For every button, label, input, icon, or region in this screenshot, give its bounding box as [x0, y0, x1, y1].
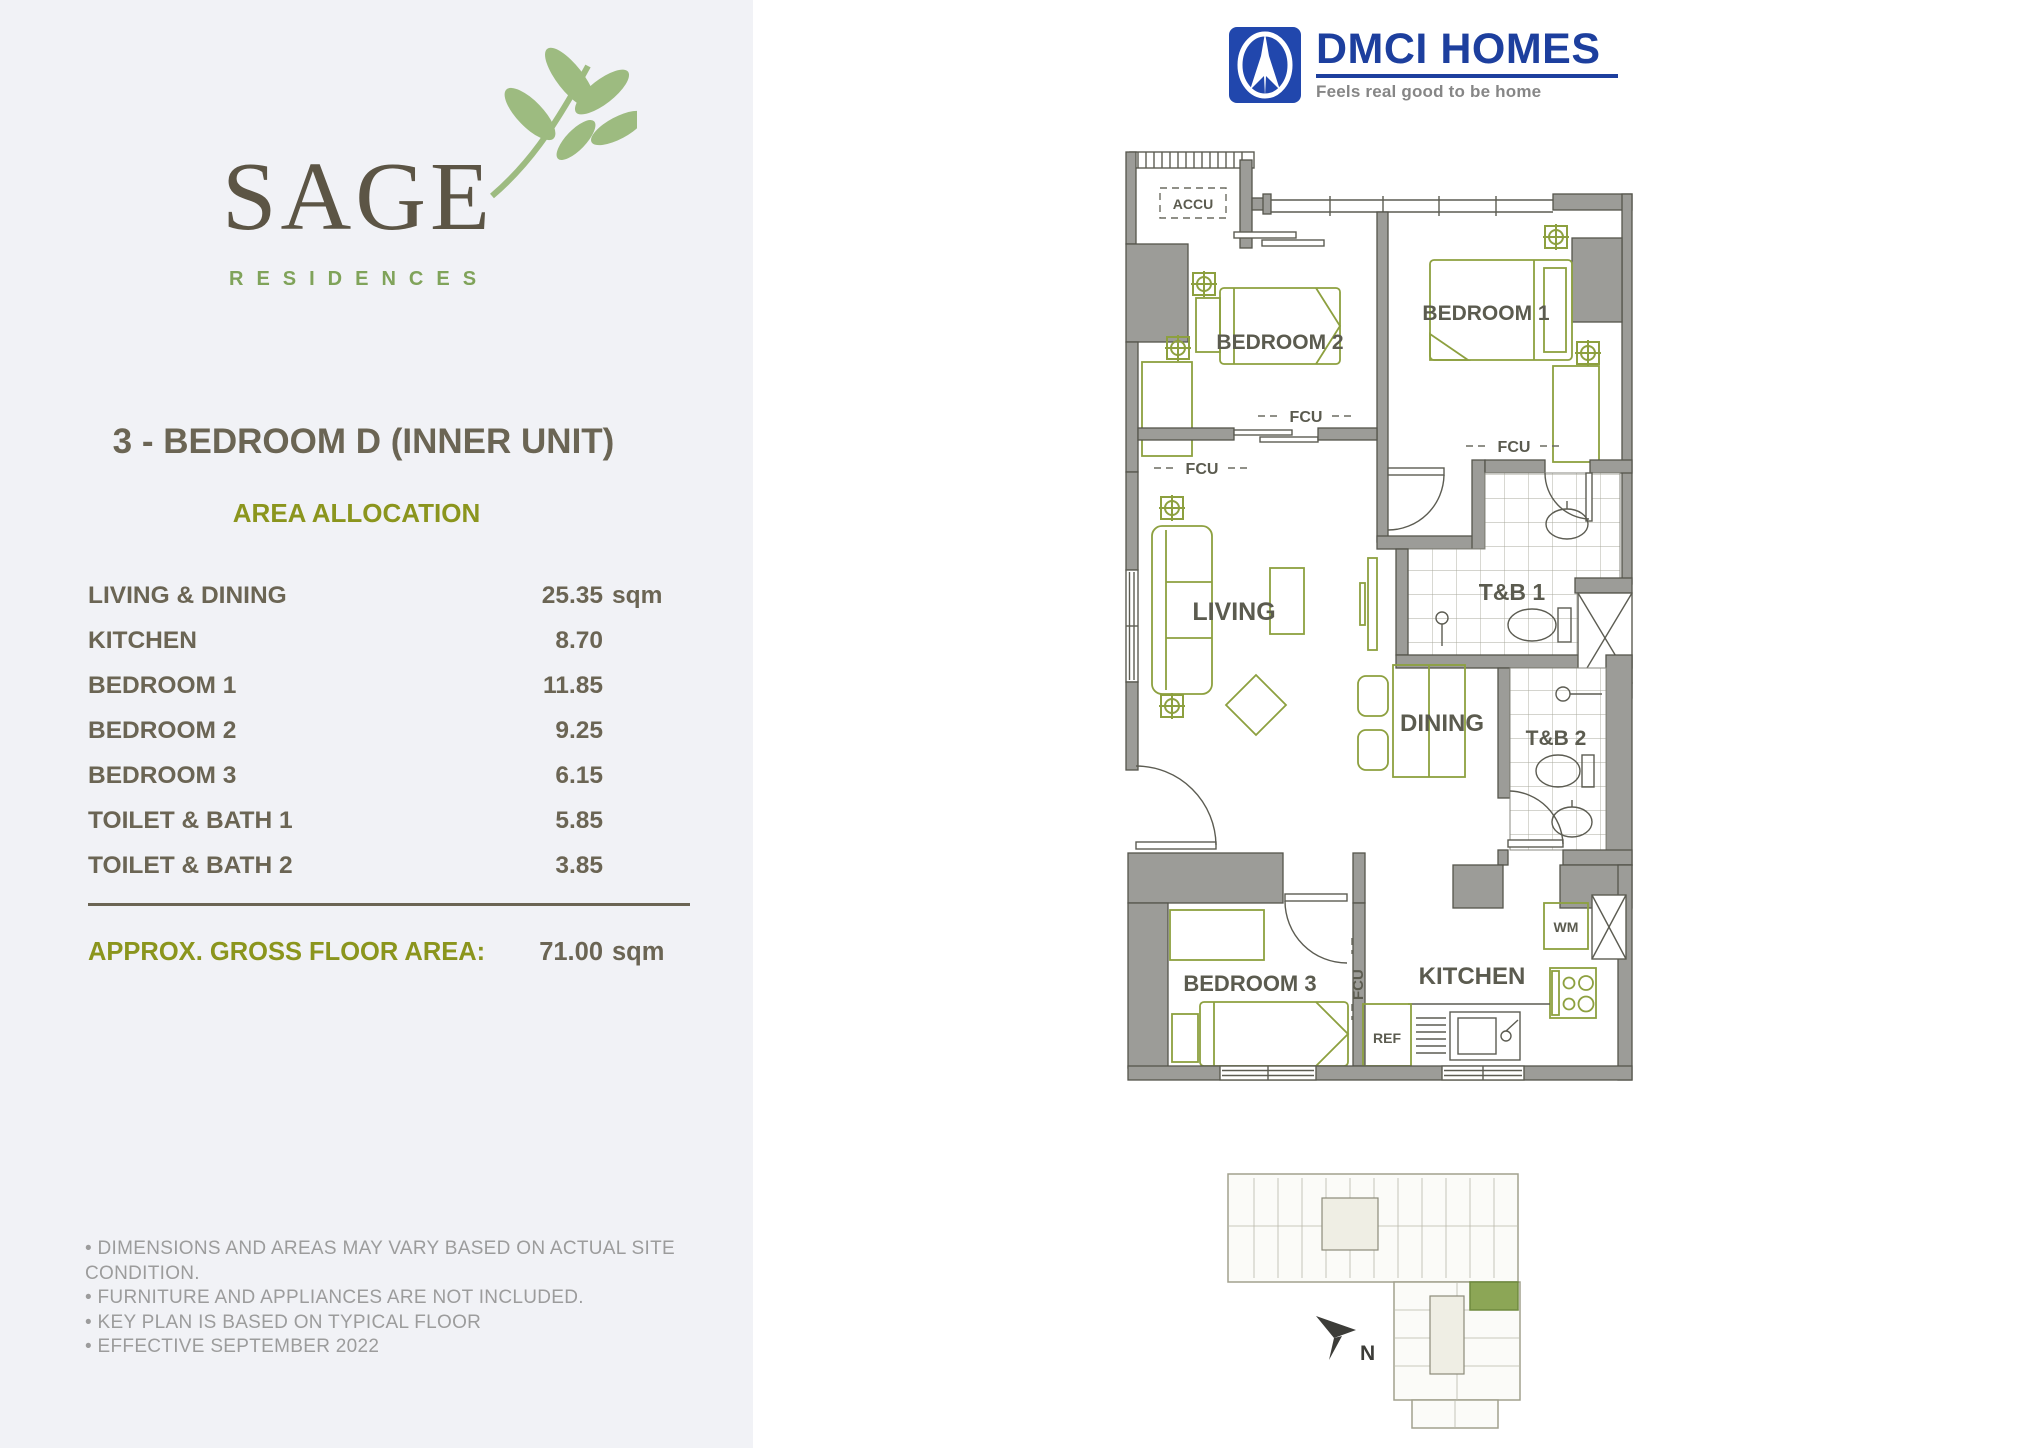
washing-machine: WM [1544, 903, 1588, 949]
sprinkler-icon [1159, 693, 1185, 719]
bedroom3-label: BEDROOM 3 [1183, 971, 1316, 996]
entry-door [1136, 766, 1216, 849]
sprinkler-icon [1159, 495, 1185, 521]
north-arrow-icon: N [1316, 1316, 1375, 1365]
unit-title: 3 - BEDROOM D (INNER UNIT) [0, 422, 727, 462]
table-row: LIVING & DINING 25.35 sqm [88, 582, 690, 627]
table-divider [88, 903, 690, 906]
gross-value: 71.00 [493, 938, 603, 967]
row-label: BEDROOM 3 [88, 762, 493, 790]
tb1-label: T&B 1 [1479, 579, 1546, 605]
accu-label: ACCU [1173, 196, 1213, 212]
svg-text:FCU: FCU [1290, 409, 1323, 426]
brochure-page: SAGE RESIDENCES 3 - BEDROOM D (INNER UNI… [0, 0, 2041, 1448]
row-label: BEDROOM 2 [88, 717, 493, 745]
gross-label: APPROX. GROSS FLOOR AREA: [88, 938, 493, 967]
wardrobe [1170, 910, 1264, 960]
footnote-line: • KEY PLAN IS BASED ON TYPICAL FLOOR [85, 1311, 753, 1336]
left-panel: SAGE RESIDENCES 3 - BEDROOM D (INNER UNI… [0, 0, 753, 1448]
building-core [1322, 1198, 1378, 1250]
footnotes: • DIMENSIONS AND AREAS MAY VARY BASED ON… [85, 1237, 753, 1360]
window-band-top [1271, 196, 1553, 216]
kitchen-sink [1416, 1012, 1520, 1060]
table-row: TOILET & BATH 1 5.85 [88, 807, 690, 852]
window-bottom-kitchen [1442, 1066, 1524, 1080]
fcu-label-bedroom2: FCU [1258, 409, 1354, 426]
column-block [1126, 244, 1188, 342]
column-block [1572, 238, 1622, 322]
north-label: N [1360, 1342, 1375, 1365]
row-value: 6.15 [493, 762, 603, 790]
dining-area: DINING [1358, 665, 1484, 777]
dmci-logo-mark-icon [1228, 26, 1302, 104]
svg-text:WM: WM [1554, 919, 1579, 935]
area-allocation-heading: AREA ALLOCATION [0, 498, 713, 529]
key-plan: N [1222, 1170, 1552, 1448]
floor-plan: ACCU BEDROOM 2 [1120, 138, 1640, 1130]
sprinkler-icon [1575, 340, 1601, 366]
table-row: BEDROOM 3 6.15 [88, 762, 690, 807]
footnote-line: • EFFECTIVE SEPTEMBER 2022 [85, 1335, 753, 1360]
fcu-label-hall: FCU [1154, 461, 1250, 478]
fcu-label-bedroom1: FCU [1466, 439, 1562, 456]
window-left [1126, 570, 1138, 682]
row-unit: sqm [603, 582, 690, 610]
bedroom3: BEDROOM 3 FCU [1170, 910, 1367, 1066]
toilet-bath-2: T&B 2 [1498, 655, 1632, 865]
row-label: BEDROOM 1 [88, 672, 493, 700]
sage-logo-subtitle: RESIDENCES [229, 268, 489, 291]
refrigerator: REF [1363, 1004, 1411, 1066]
row-value: 9.25 [493, 717, 603, 745]
row-value: 5.85 [493, 807, 603, 835]
building-core [1430, 1296, 1464, 1374]
row-label: KITCHEN [88, 627, 493, 655]
living-label: LIVING [1192, 598, 1275, 626]
row-value: 25.35 [493, 582, 603, 610]
dmci-logo: DMCI HOMES Feels real good to be home [1228, 26, 1618, 104]
svg-text:FCU: FCU [1186, 461, 1219, 478]
dmci-underline [1316, 74, 1618, 78]
window-bottom-bedroom3 [1220, 1066, 1316, 1080]
footnote-line: • DIMENSIONS AND AREAS MAY VARY BASED ON… [85, 1237, 753, 1286]
wardrobe [1553, 366, 1599, 462]
living-room: LIVING [1152, 495, 1377, 735]
row-value: 3.85 [493, 852, 603, 880]
area-allocation-table: LIVING & DINING 25.35 sqm KITCHEN 8.70 B… [88, 582, 690, 897]
table-row: BEDROOM 2 9.25 [88, 717, 690, 762]
row-value: 11.85 [493, 672, 603, 700]
row-label: TOILET & BATH 2 [88, 852, 493, 880]
table-row: TOILET & BATH 2 3.85 [88, 852, 690, 897]
row-label: LIVING & DINING [88, 582, 493, 610]
kitchen: KITCHEN WM [1363, 895, 1626, 1066]
leaf-sprig-icon [452, 44, 637, 199]
gross-unit: sqm [603, 938, 690, 967]
dmci-name: DMCI HOMES [1316, 26, 1618, 73]
svg-text:REF: REF [1373, 1030, 1401, 1046]
svg-text:FCU: FCU [1350, 969, 1367, 1000]
dmci-logo-text: DMCI HOMES Feels real good to be home [1316, 26, 1618, 104]
highlighted-unit [1470, 1282, 1518, 1310]
bedroom2-label: BEDROOM 2 [1216, 331, 1343, 354]
bedroom1-label: BEDROOM 1 [1422, 302, 1550, 325]
stove [1550, 968, 1596, 1018]
row-value: 8.70 [493, 627, 603, 655]
bedroom3-door [1285, 894, 1347, 963]
row-label: TOILET & BATH 1 [88, 807, 493, 835]
gross-floor-area-row: APPROX. GROSS FLOOR AREA: 71.00 sqm [88, 938, 690, 967]
dmci-tagline: Feels real good to be home [1316, 82, 1618, 102]
table-row: BEDROOM 1 11.85 [88, 672, 690, 717]
sprinkler-icon [1191, 271, 1217, 297]
sprinkler-icon [1543, 224, 1569, 250]
sage-logo: SAGE RESIDENCES [0, 0, 753, 320]
svg-text:FCU: FCU [1498, 439, 1531, 456]
kitchen-label: KITCHEN [1419, 963, 1526, 990]
utility-shaft [1592, 895, 1626, 959]
footnote-line: • FURNITURE AND APPLIANCES ARE NOT INCLU… [85, 1286, 753, 1311]
tb2-label: T&B 2 [1526, 727, 1587, 750]
dining-label: DINING [1400, 710, 1484, 737]
table-row: KITCHEN 8.70 [88, 627, 690, 672]
wardrobe [1142, 362, 1192, 456]
